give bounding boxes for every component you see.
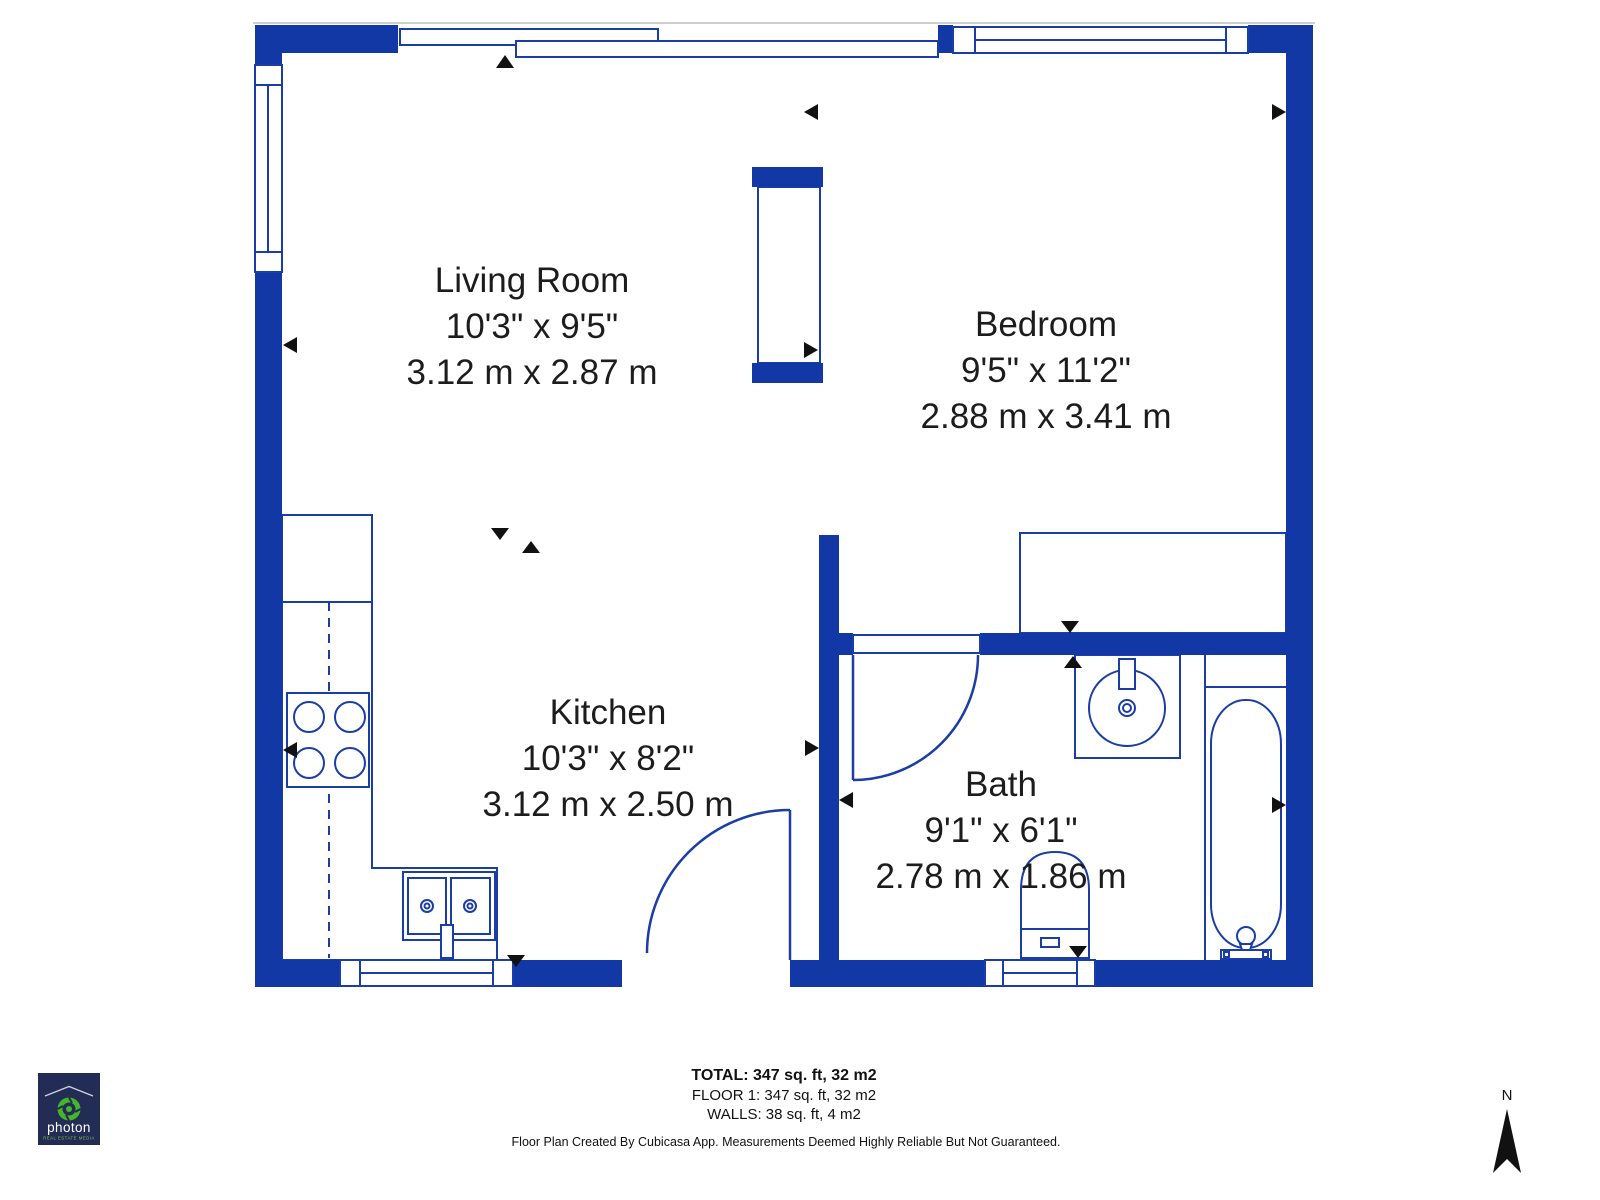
disclaimer-text: Floor Plan Created By Cubicasa App. Meas…	[512, 1135, 1061, 1149]
room-name: Bath	[876, 762, 1127, 808]
room-dims-metric: 2.88 m x 3.41 m	[921, 394, 1172, 440]
camera-marker-icon	[805, 740, 819, 756]
camera-marker-icon	[522, 541, 540, 553]
area-summary: TOTAL: 347 sq. ft, 32 m2 FLOOR 1: 347 sq…	[691, 1066, 876, 1124]
logo-tagline: REAL ESTATE MEDIA	[43, 1136, 95, 1141]
kitchen-door-arc	[647, 810, 790, 960]
room-dims-imperial: 9'1" x 6'1"	[876, 808, 1127, 854]
living-window-icon	[255, 65, 282, 272]
photon-logo-graphic: photon REAL ESTATE MEDIA	[38, 1073, 100, 1145]
bedroom-window-icon	[953, 27, 1248, 53]
room-dims-metric: 3.12 m x 2.50 m	[483, 782, 734, 828]
room-name: Living Room	[407, 258, 658, 304]
room-label-bath: Bath 9'1" x 6'1" 2.78 m x 1.86 m	[876, 762, 1127, 900]
closet	[1020, 533, 1286, 633]
room-dims-imperial: 10'3" x 9'5"	[407, 304, 658, 350]
room-name: Bedroom	[921, 302, 1172, 348]
room-dims-imperial: 9'5" x 11'2"	[921, 348, 1172, 394]
floor-area-line: FLOOR 1: 347 sq. ft, 32 m2	[691, 1086, 876, 1105]
camera-marker-icon	[491, 528, 509, 540]
bath-window-icon	[985, 960, 1095, 986]
walls-layer	[255, 25, 1313, 987]
room-dims-metric: 3.12 m x 2.87 m	[407, 350, 658, 396]
room-dims-imperial: 10'3" x 8'2"	[483, 736, 734, 782]
bathroom-sink-icon	[1075, 655, 1180, 758]
room-label-bedroom: Bedroom 9'5" x 11'2" 2.88 m x 3.41 m	[921, 302, 1172, 440]
compass-north-label: N	[1502, 1087, 1513, 1104]
floor-plan-page: Living Room 10'3" x 9'5" 3.12 m x 2.87 m…	[0, 0, 1600, 1200]
camera-marker-icon	[1272, 104, 1286, 120]
total-area-line: TOTAL: 347 sq. ft, 32 m2	[691, 1066, 876, 1086]
logo-wordmark: photon	[47, 1120, 91, 1135]
room-name: Kitchen	[483, 690, 734, 736]
camera-marker-icon	[839, 792, 853, 808]
camera-marker-icon	[804, 104, 818, 120]
bath-door-arc	[853, 635, 980, 780]
room-label-kitchen: Kitchen 10'3" x 8'2" 3.12 m x 2.50 m	[483, 690, 734, 828]
north-arrow-icon	[1489, 1109, 1525, 1175]
floor-plan-drawing	[0, 0, 1600, 1200]
kitchen-window-icon	[340, 960, 513, 986]
walls-area-line: WALLS: 38 sq. ft, 4 m2	[691, 1105, 876, 1124]
camera-marker-icon	[283, 337, 297, 353]
camera-marker-icon	[496, 55, 514, 68]
photon-logo: photon REAL ESTATE MEDIA	[38, 1073, 100, 1145]
room-dims-metric: 2.78 m x 1.86 m	[876, 854, 1127, 900]
stove-icon	[287, 693, 369, 787]
aperture-icon	[58, 1098, 81, 1121]
room-divider	[758, 187, 820, 363]
room-label-living-room: Living Room 10'3" x 9'5" 3.12 m x 2.87 m	[407, 258, 658, 396]
sliding-window-icon	[400, 29, 938, 57]
